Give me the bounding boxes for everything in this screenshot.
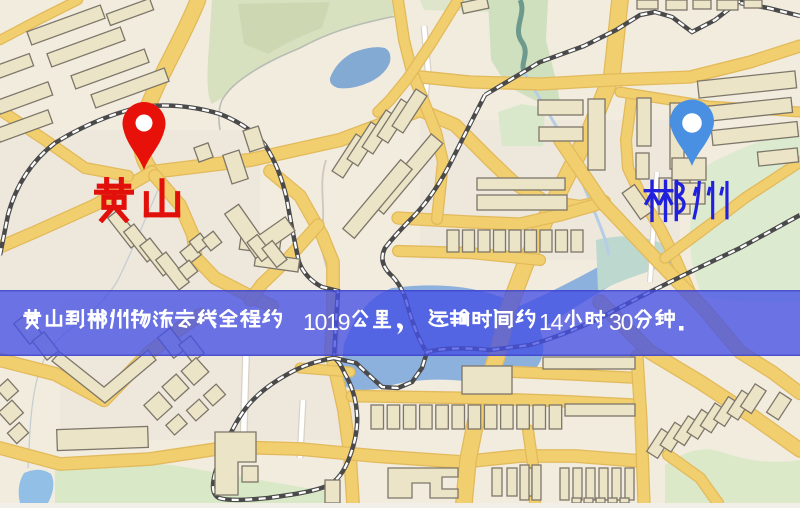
svg-text:14: 14 <box>539 309 564 335</box>
svg-text:1019: 1019 <box>303 309 350 335</box>
svg-text:30: 30 <box>609 309 633 335</box>
